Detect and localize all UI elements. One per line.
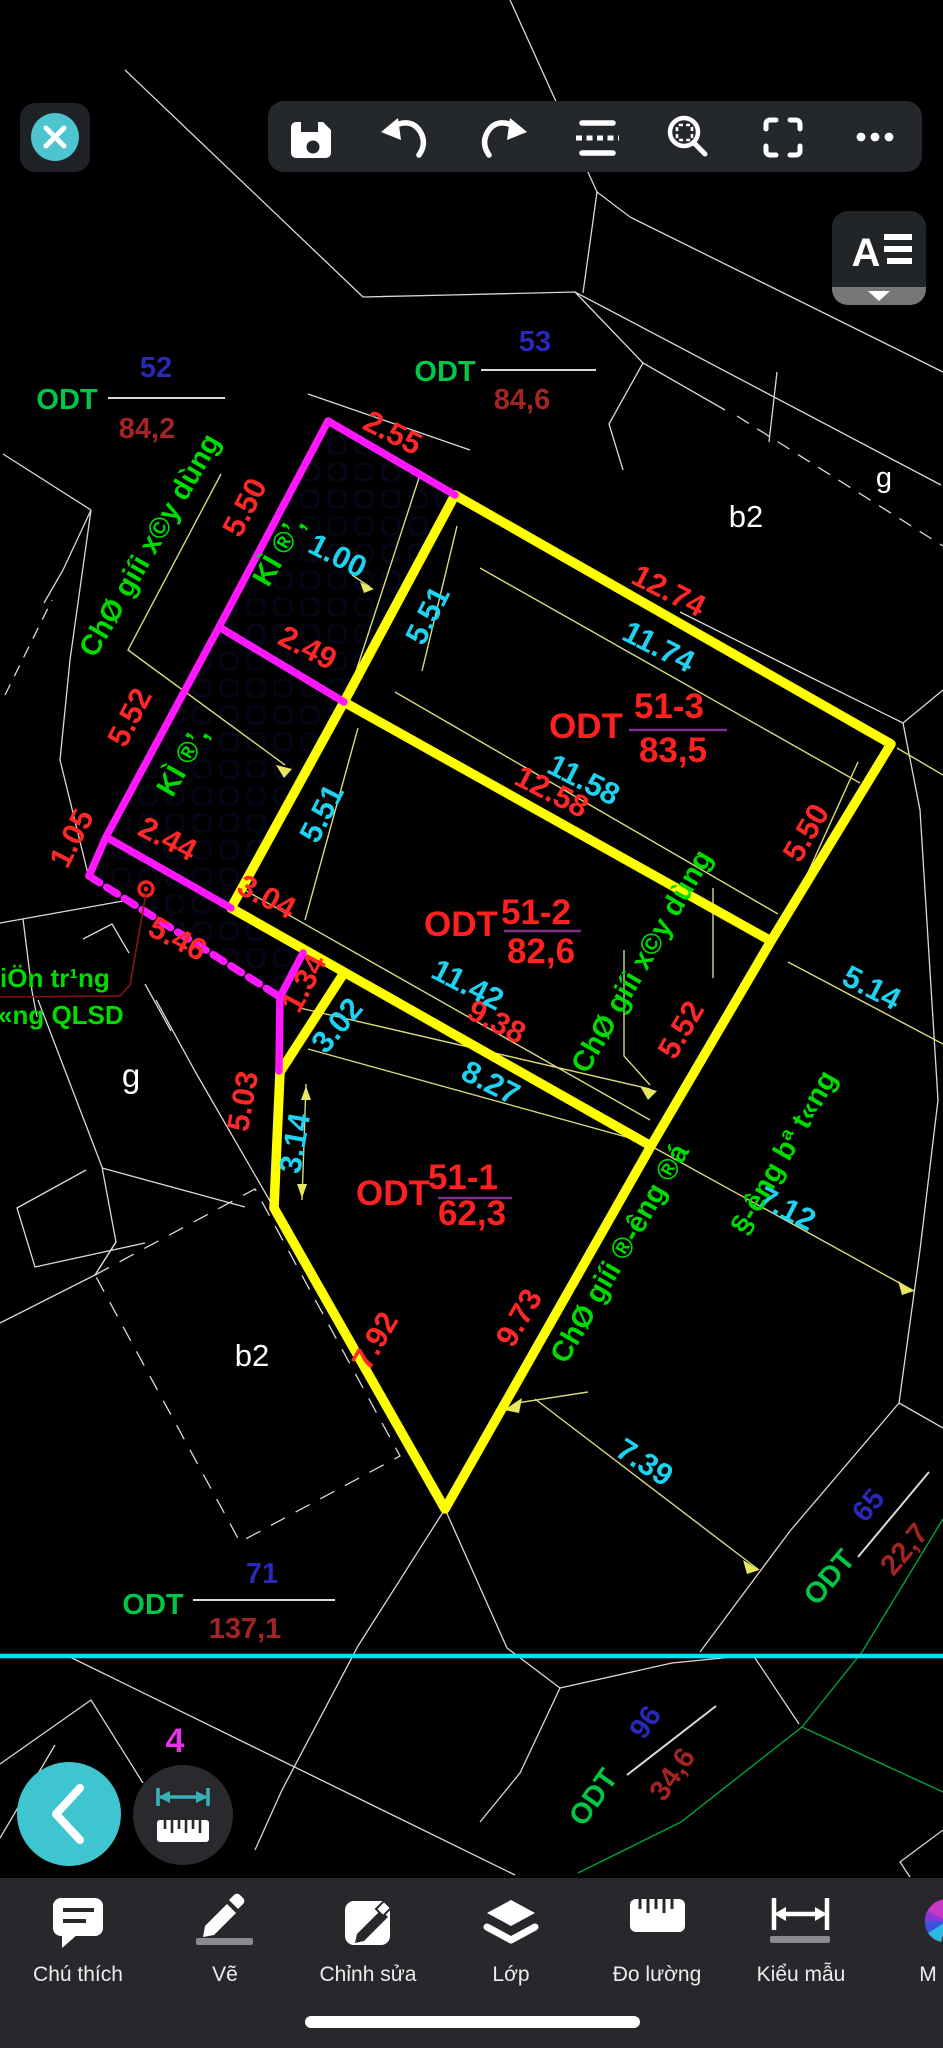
svg-text:ODT: ODT [424, 905, 498, 944]
svg-text:3.02: 3.02 [304, 991, 370, 1060]
svg-text:iÖn tr¹ng: iÖn tr¹ng [0, 963, 110, 993]
svg-text:ODT: ODT [549, 707, 623, 746]
svg-text:5.14: 5.14 [837, 958, 907, 1017]
svg-text:51-1: 51-1 [428, 1158, 498, 1197]
svg-text:A: A [852, 231, 881, 275]
svg-text:Đo lường: Đo lường [613, 1963, 702, 1986]
svg-text:5.52: 5.52 [100, 682, 159, 752]
svg-text:b2: b2 [729, 499, 763, 534]
svg-text:137,1: 137,1 [209, 1613, 282, 1645]
svg-text:«ng QLSD: «ng QLSD [0, 1000, 124, 1030]
svg-text:82,6: 82,6 [507, 932, 575, 971]
svg-text:4: 4 [166, 1722, 185, 1760]
svg-text:Lớp: Lớp [492, 1963, 529, 1986]
svg-text:Vẽ: Vẽ [212, 1963, 238, 1986]
svg-text:ODT: ODT [122, 1589, 184, 1621]
svg-text:Chú thích: Chú thích [33, 1963, 123, 1986]
svg-text:ChØ giíi x©y dùng: ChØ giíi x©y dùng [73, 428, 227, 662]
svg-text:ChØ giíi ®-êng ®á: ChØ giíi ®-êng ®á [545, 1138, 697, 1369]
svg-text:83,5: 83,5 [639, 731, 707, 770]
svg-text:Chỉnh sửa: Chỉnh sửa [320, 1963, 417, 1986]
svg-text:ODT: ODT [798, 1544, 862, 1612]
svg-text:65: 65 [846, 1483, 891, 1528]
svg-text:b2: b2 [235, 1338, 269, 1373]
svg-text:84,6: 84,6 [494, 384, 550, 416]
svg-text:g: g [876, 462, 892, 494]
svg-text:34,6: 34,6 [644, 1742, 703, 1807]
svg-text:ODT: ODT [563, 1763, 624, 1832]
svg-text:7.39: 7.39 [610, 1431, 680, 1493]
svg-text:53: 53 [519, 326, 551, 358]
svg-text:71: 71 [246, 1558, 278, 1590]
svg-text:52: 52 [140, 352, 172, 384]
svg-text:96: 96 [623, 1700, 668, 1745]
svg-text:62,3: 62,3 [438, 1194, 506, 1233]
svg-text:Kiểu mẫu: Kiểu mẫu [757, 1963, 846, 1986]
svg-text:7.92: 7.92 [345, 1306, 405, 1376]
svg-text:51-3: 51-3 [634, 687, 704, 726]
svg-text:ChØ giíi x©y dùng: ChØ giíi x©y dùng [565, 844, 719, 1078]
svg-text:84,2: 84,2 [119, 413, 175, 445]
svg-text:ODT: ODT [356, 1174, 430, 1213]
svg-text:8.27: 8.27 [456, 1053, 526, 1112]
svg-text:51-2: 51-2 [501, 893, 571, 932]
svg-text:11.42: 11.42 [426, 952, 509, 1018]
svg-text:g: g [122, 1057, 140, 1094]
svg-text:5.03: 5.03 [220, 1068, 265, 1134]
svg-text:ODT: ODT [36, 384, 98, 416]
svg-text:5.50: 5.50 [215, 472, 274, 542]
svg-text:M: M [919, 1963, 937, 1986]
svg-text:ODT: ODT [414, 356, 476, 388]
